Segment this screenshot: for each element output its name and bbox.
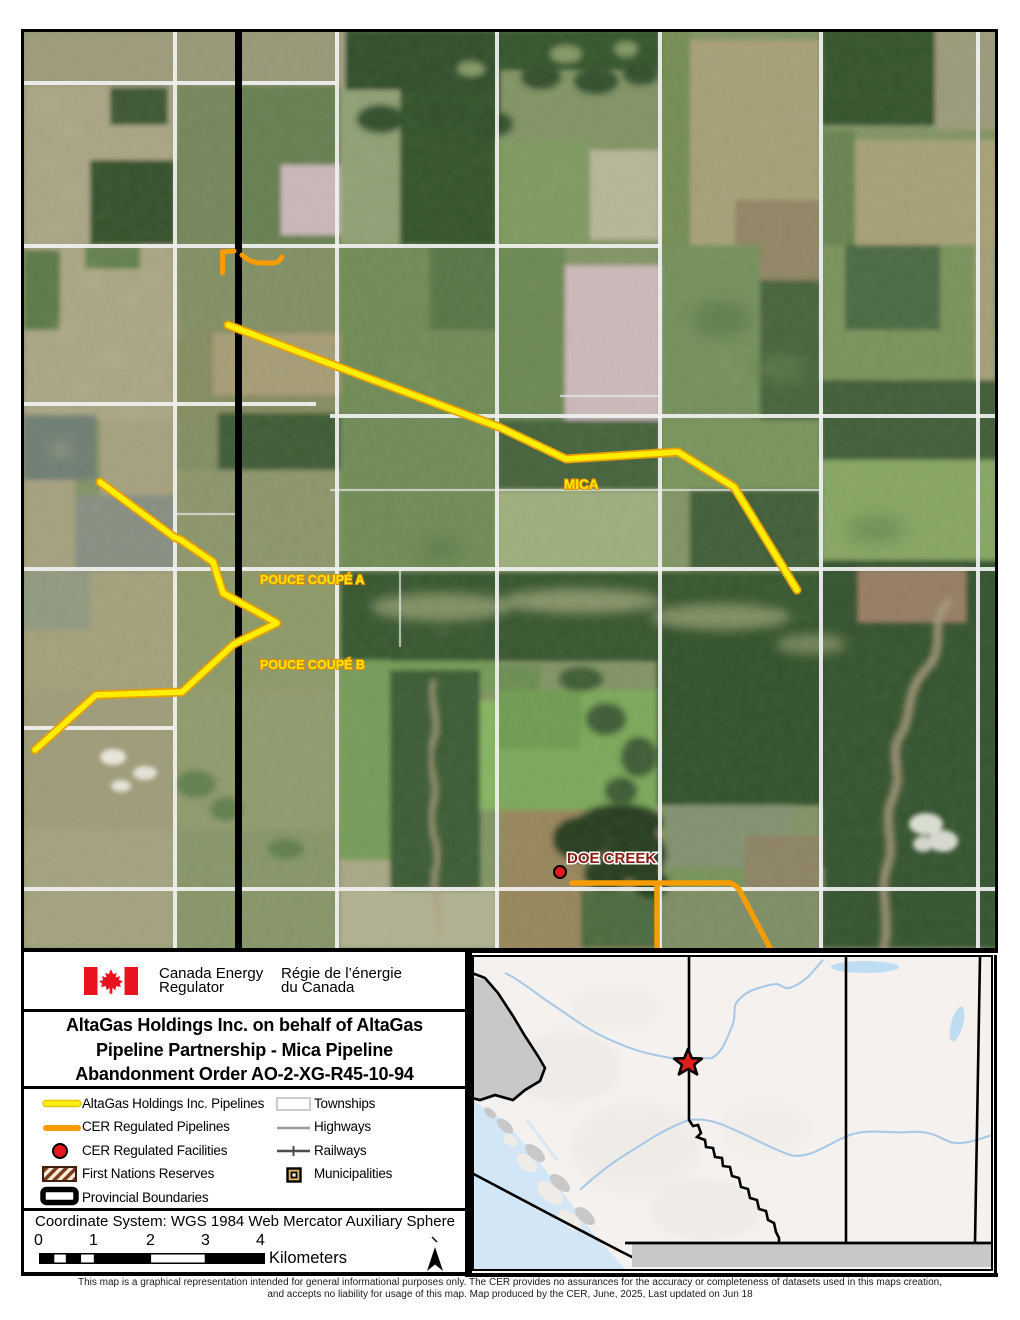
svg-text:MICA: MICA [564,477,599,492]
svg-text:POUCE COUPÉ A: POUCE COUPÉ A [260,572,364,587]
svg-text:DOE CREEK: DOE CREEK [567,850,656,867]
svg-text:POUCE COUPÉ B: POUCE COUPÉ B [260,657,365,672]
